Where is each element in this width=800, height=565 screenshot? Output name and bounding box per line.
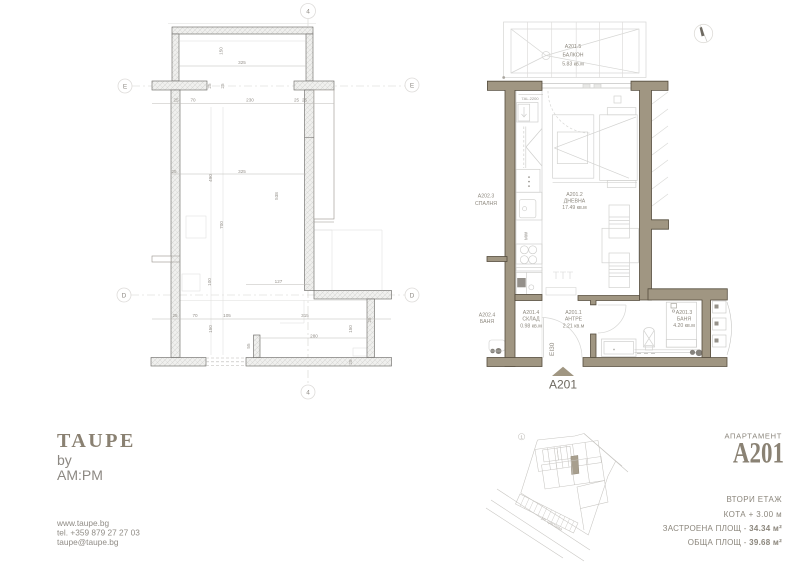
svg-text:ЗАСТРОЕНА ПЛОЩ - 34.34 м²: ЗАСТРОЕНА ПЛОЩ - 34.34 м² <box>663 524 782 533</box>
svg-text:АНТРЕ: АНТРЕ <box>565 317 583 323</box>
svg-text:A201: A201 <box>733 436 784 469</box>
svg-text:25: 25 <box>294 98 300 103</box>
svg-text:700: 700 <box>219 221 224 229</box>
svg-text:A201.3: A201.3 <box>676 310 693 316</box>
svg-text:БАНЯ: БАНЯ <box>677 317 691 323</box>
svg-text:БАНЯ: БАНЯ <box>480 319 494 325</box>
svg-text:E: E <box>123 84 128 91</box>
svg-text:AM:PM: AM:PM <box>57 467 103 483</box>
svg-text:A201.2: A201.2 <box>566 192 583 198</box>
svg-text:ОБЩА ПЛОЩ - 39.68 м²: ОБЩА ПЛОЩ - 39.68 м² <box>688 538 782 547</box>
svg-text:25: 25 <box>220 83 225 89</box>
svg-text:25: 25 <box>171 169 177 174</box>
svg-text:БАЛКОН: БАЛКОН <box>562 53 583 59</box>
svg-text:A201.1: A201.1 <box>565 310 582 316</box>
svg-text:СПАЛНЯ: СПАЛНЯ <box>475 201 497 207</box>
svg-text:E: E <box>410 83 415 90</box>
svg-text:25: 25 <box>173 98 179 103</box>
svg-text:2.21 кв.м: 2.21 кв.м <box>563 323 585 329</box>
svg-text:D: D <box>410 293 415 300</box>
svg-text:17.49 кв.м: 17.49 кв.м <box>562 205 587 211</box>
svg-text:5.83 кв.м: 5.83 кв.м <box>562 61 584 67</box>
svg-text:490: 490 <box>208 174 213 182</box>
svg-text:A201.4: A201.4 <box>523 310 540 316</box>
svg-text:4.20 кв.м: 4.20 кв.м <box>673 323 695 329</box>
svg-text:325: 325 <box>238 169 246 174</box>
svg-text:tel. +359 879 27 27 03: tel. +359 879 27 27 03 <box>57 528 140 538</box>
svg-text:EI30: EI30 <box>549 342 556 356</box>
svg-text:TAUPE: TAUPE <box>57 430 136 452</box>
svg-text:55: 55 <box>246 343 251 349</box>
svg-text:4: 4 <box>306 390 310 397</box>
svg-text:100: 100 <box>207 278 212 286</box>
svg-text:taupe@taupe.bg: taupe@taupe.bg <box>57 537 119 547</box>
svg-text:280: 280 <box>310 334 318 339</box>
svg-text:105: 105 <box>223 313 231 318</box>
svg-text:www.taupe.bg: www.taupe.bg <box>56 518 110 528</box>
svg-text:A202.3: A202.3 <box>478 194 495 200</box>
svg-text:325: 325 <box>238 60 246 65</box>
svg-text:by: by <box>57 452 72 468</box>
svg-text:A202.4: A202.4 <box>479 313 496 319</box>
svg-text:КОТА + 3.00 м: КОТА + 3.00 м <box>724 510 782 519</box>
svg-text:7AL.2200: 7AL.2200 <box>521 96 539 101</box>
svg-text:150: 150 <box>348 325 353 333</box>
svg-text:ДНЕВНА: ДНЕВНА <box>564 199 586 205</box>
svg-text:A201.5: A201.5 <box>565 44 582 50</box>
svg-text:538: 538 <box>274 192 279 200</box>
svg-text:4: 4 <box>306 9 310 16</box>
svg-text:25: 25 <box>302 98 308 103</box>
svg-text:D: D <box>122 293 127 300</box>
svg-text:A201: A201 <box>549 378 577 392</box>
svg-text:150: 150 <box>219 47 224 55</box>
svg-text:315: 315 <box>301 313 309 318</box>
svg-text:25: 25 <box>367 317 372 323</box>
svg-text:СКЛАД: СКЛАД <box>522 317 540 323</box>
svg-text:150: 150 <box>208 325 213 333</box>
svg-text:0.98 кв.м: 0.98 кв.м <box>520 323 542 329</box>
svg-text:25: 25 <box>172 313 178 318</box>
svg-text:25: 25 <box>348 359 353 365</box>
svg-text:MW: MW <box>524 231 529 240</box>
svg-text:25: 25 <box>207 83 212 89</box>
svg-text:127: 127 <box>275 279 283 284</box>
svg-text:ВТОРИ ЕТАЖ: ВТОРИ ЕТАЖ <box>726 495 782 504</box>
svg-text:230: 230 <box>246 98 254 103</box>
svg-text:70: 70 <box>190 98 196 103</box>
svg-text:70: 70 <box>192 313 198 318</box>
